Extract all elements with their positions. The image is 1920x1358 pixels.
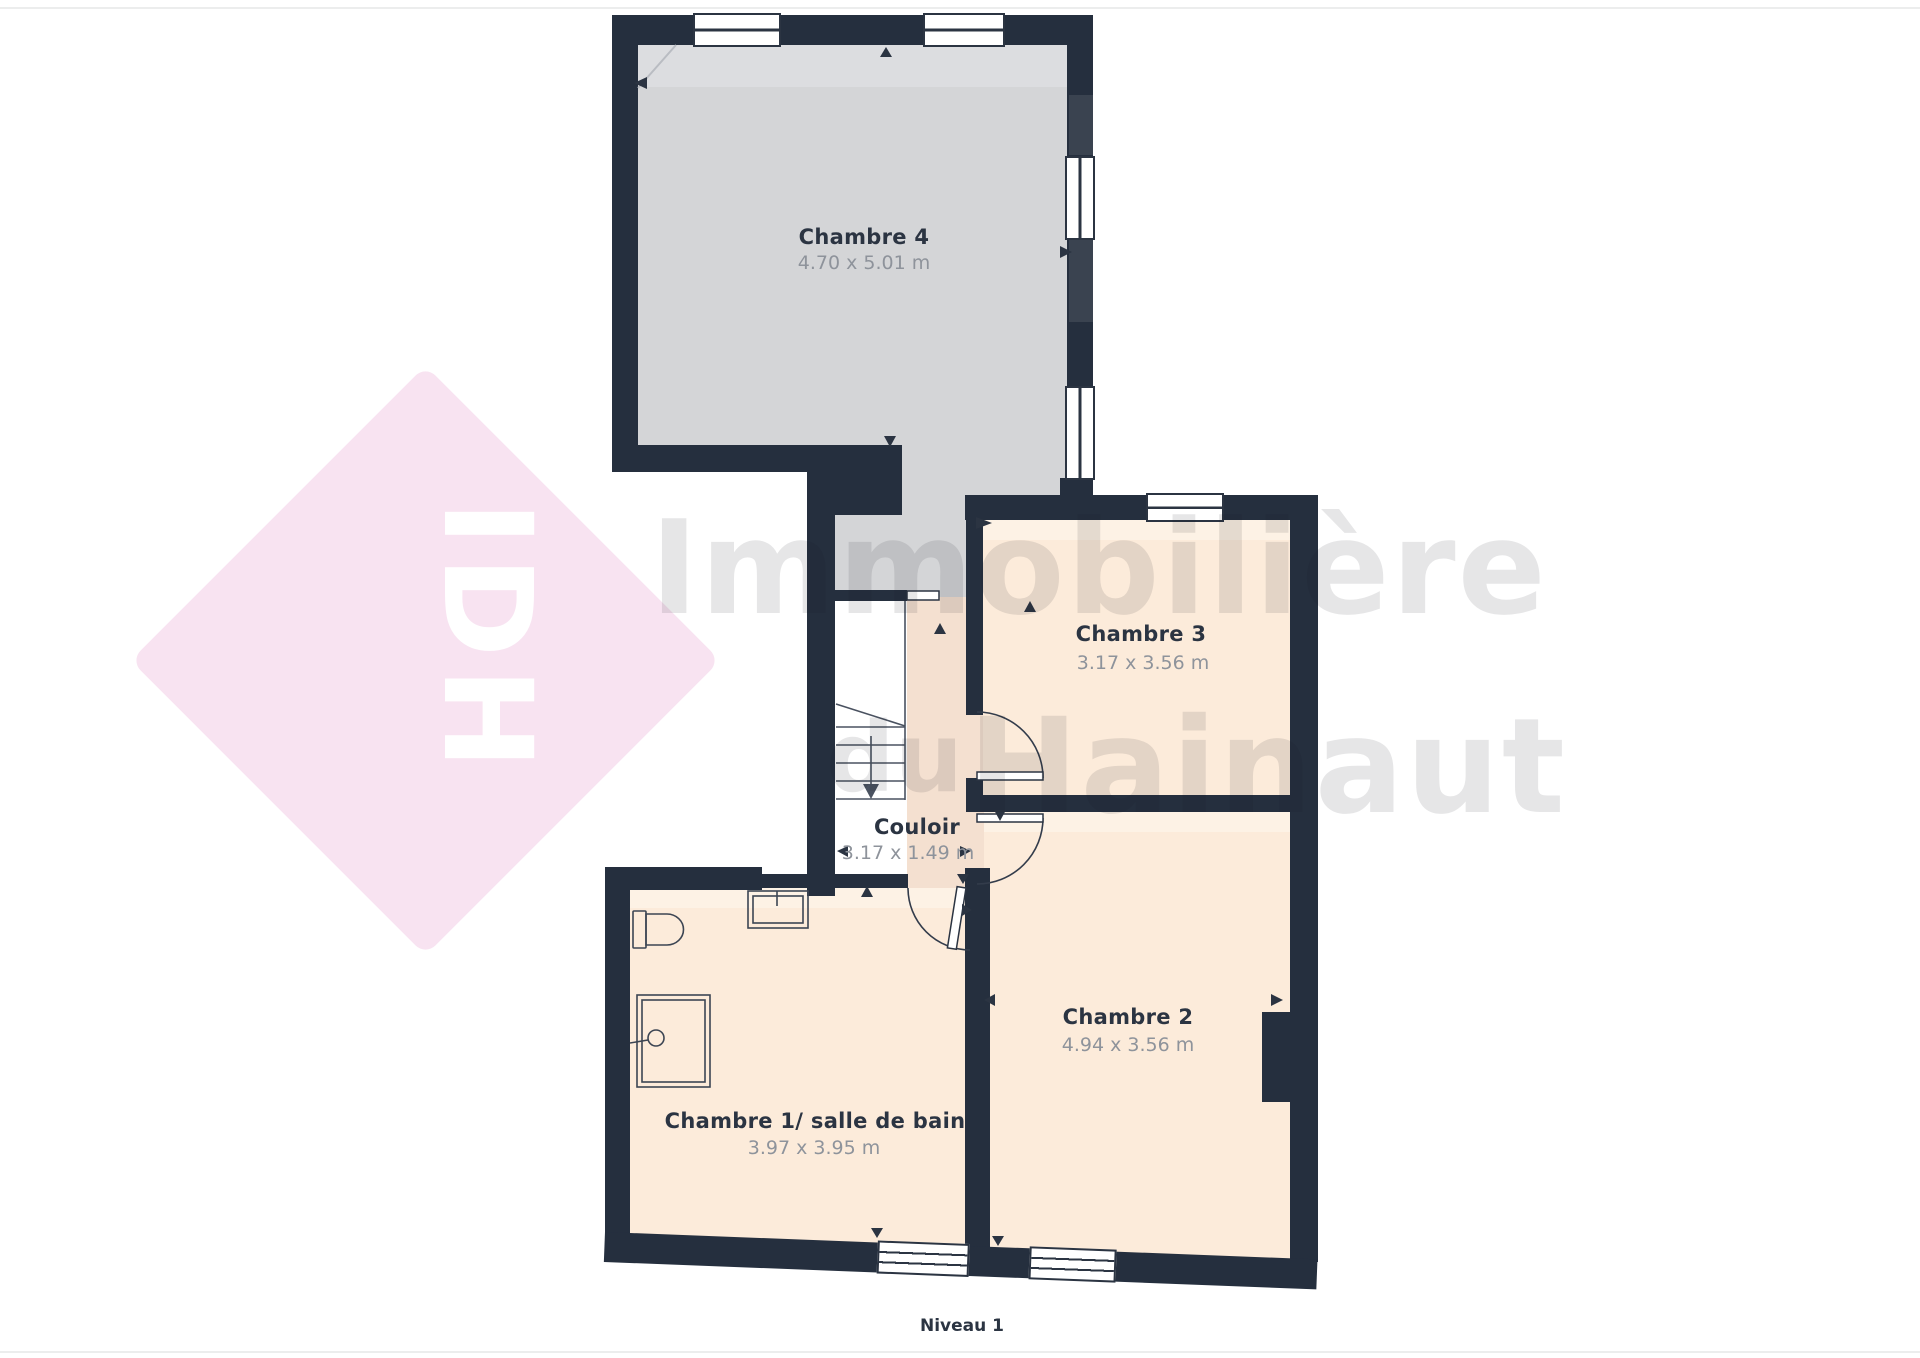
wall-landing-edge bbox=[833, 590, 907, 601]
room-label-chambre3: Chambre 3 bbox=[1076, 622, 1207, 646]
window-chambre2-bottom bbox=[1028, 1246, 1116, 1282]
room-chambre3-shade bbox=[983, 520, 1290, 540]
room-dimensions-chambre2: 4.94 x 3.56 m bbox=[1062, 1034, 1194, 1056]
room-label-chambre2: Chambre 2 bbox=[1063, 1005, 1194, 1029]
room-chambre4-shade bbox=[638, 45, 1067, 87]
wall-chambre4-bottom bbox=[612, 445, 835, 472]
room-chambre1-shade bbox=[630, 888, 970, 908]
wall-chambre3-left-upper bbox=[966, 503, 983, 715]
wall-chambre3-top bbox=[965, 495, 1318, 520]
window-chambre4-top-left bbox=[693, 13, 781, 47]
window-chambre1-bottom bbox=[877, 1240, 970, 1277]
wall-chambre1-top bbox=[605, 867, 762, 890]
room-dimensions-chambre3: 3.17 x 3.56 m bbox=[1077, 652, 1209, 674]
stairwell-void bbox=[835, 601, 907, 883]
door-opening-chambre3 bbox=[966, 715, 983, 778]
room-label-chambre1: Chambre 1/ salle de bain bbox=[665, 1109, 966, 1133]
room-chambre1-floor bbox=[630, 888, 970, 1260]
wall-chambre1-left bbox=[605, 867, 630, 1262]
room-label-couloir: Couloir bbox=[874, 815, 960, 839]
wall-stub-block bbox=[835, 445, 902, 515]
watermark-logo-text: IDH bbox=[416, 501, 558, 780]
wall-divider-ch1-ch2 bbox=[965, 868, 990, 1250]
wall-stairwell-left bbox=[807, 472, 835, 896]
level-label: Niveau 1 bbox=[920, 1316, 1004, 1336]
page-top-edge-line bbox=[0, 7, 1920, 9]
wall-divider-ch3-ch2 bbox=[966, 795, 1318, 812]
wall-chambre4-top bbox=[612, 15, 1093, 45]
window-chambre4-right-upper bbox=[1065, 156, 1095, 240]
wall-reveal-light-1 bbox=[1069, 95, 1093, 155]
page-bottom-edge-line bbox=[0, 1351, 1920, 1353]
room-dimensions-couloir: 3.17 x 1.49 m bbox=[842, 842, 974, 864]
floorplan-page: Chambre 4 4.70 x 5.01 m Chambre 3 3.17 x… bbox=[0, 0, 1920, 1358]
window-chambre4-right-lower bbox=[1065, 386, 1095, 480]
room-chambre2-shade bbox=[984, 812, 1290, 832]
wall-chambre4-left bbox=[612, 15, 638, 472]
room-dimensions-chambre4: 4.70 x 5.01 m bbox=[798, 252, 930, 274]
room-dimensions-chambre1: 3.97 x 3.95 m bbox=[748, 1137, 880, 1159]
wall-chambre3-right bbox=[1290, 495, 1318, 812]
window-chambre3-top bbox=[1146, 493, 1224, 522]
room-label-chambre4: Chambre 4 bbox=[799, 225, 930, 249]
wall-couloir-bottom bbox=[762, 874, 908, 888]
wall-niche-chambre2 bbox=[1262, 1012, 1292, 1102]
wall-reveal-light-2 bbox=[1069, 238, 1093, 322]
wall-chambre2-right bbox=[1290, 810, 1318, 1262]
window-chambre4-top-right bbox=[923, 13, 1005, 47]
